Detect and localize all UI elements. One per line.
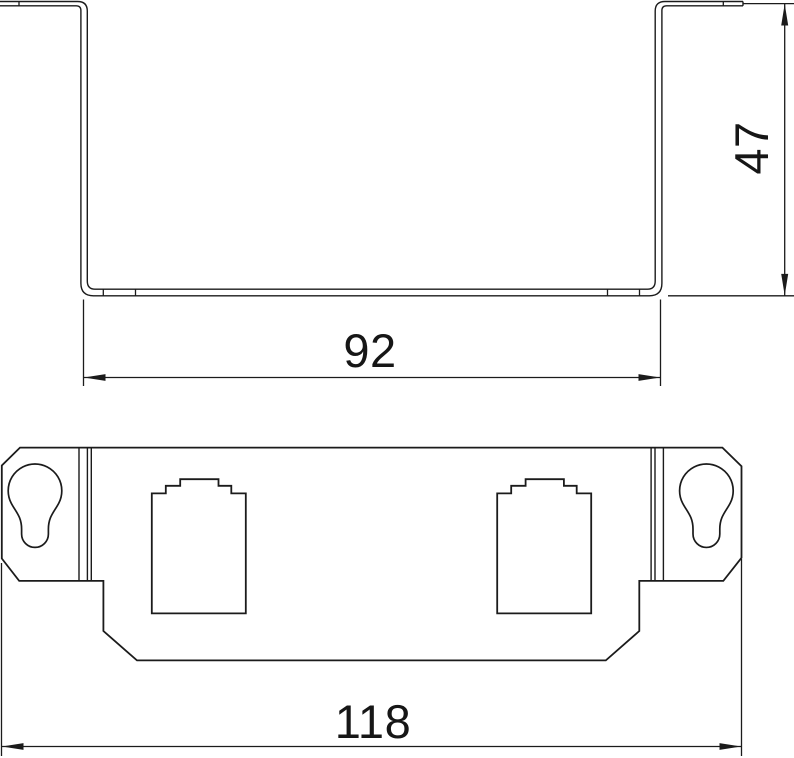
keyhole-slot-right xyxy=(680,464,734,547)
front-view-tab-divider-lines xyxy=(79,448,663,581)
jack-opening-left xyxy=(152,479,246,613)
drawing-canvas xyxy=(0,0,794,758)
side-view-outer-contour xyxy=(0,2,743,290)
keyhole-slot-left xyxy=(8,464,62,547)
dimension-label-overall-width: 118 xyxy=(303,697,443,747)
dimension-label-inner-width: 92 xyxy=(300,326,440,376)
front-view-outline xyxy=(2,448,742,661)
side-view-bend-ticks xyxy=(19,1,723,296)
side-view-inner-contour xyxy=(0,6,743,296)
jack-opening-right xyxy=(497,479,591,613)
dimension-label-height: 47 xyxy=(727,78,777,218)
technical-drawing-sheet: 47 92 118 xyxy=(0,0,794,758)
